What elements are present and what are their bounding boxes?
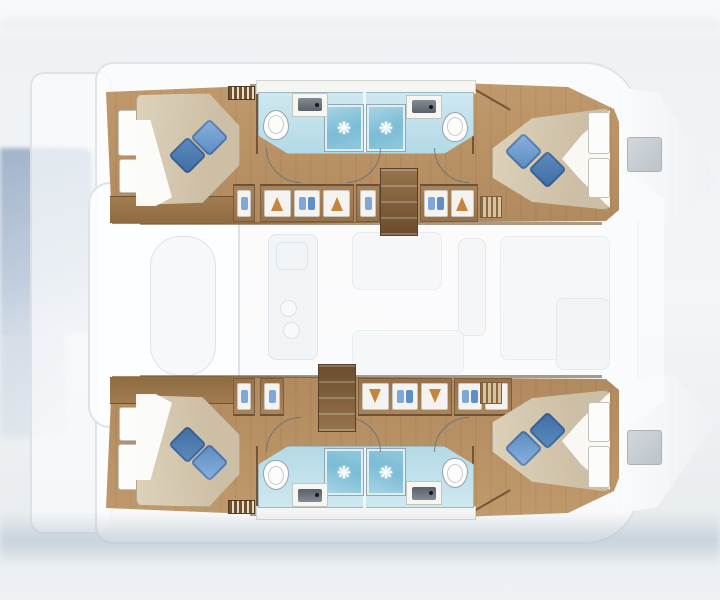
wardrobe-door — [264, 383, 280, 410]
wardrobe-door — [237, 383, 251, 410]
shirt-icon — [241, 390, 248, 403]
ghost-saloon-seat — [352, 232, 442, 290]
wardrobe-door — [323, 190, 350, 217]
companionway-stairs — [380, 168, 418, 236]
shirt-icon — [462, 390, 469, 403]
bathroom-counter-wall — [256, 80, 476, 94]
vent-grille — [480, 196, 502, 218]
wardrobe-door — [451, 190, 475, 217]
shower-stall: ❋ — [367, 449, 405, 495]
floorplan-canvas: ❋ ❋ — [0, 0, 720, 600]
wardrobe-door — [237, 190, 251, 217]
hull: ❋ ❋ — [100, 372, 622, 520]
shirt-icon — [308, 197, 315, 210]
background-streak — [0, 20, 720, 29]
ghost-galley-sink — [276, 242, 308, 270]
wardrobe — [233, 184, 255, 222]
sink — [406, 481, 442, 505]
bow-hatch-upper — [627, 137, 662, 172]
wardrobe-door — [424, 190, 448, 217]
hanger-icon — [271, 197, 283, 211]
hanger-icon — [429, 390, 441, 404]
showerhead-icon: ❋ — [337, 464, 351, 481]
wardrobe — [260, 184, 354, 222]
sink — [292, 483, 328, 507]
wardrobe-door — [421, 383, 448, 410]
wardrobe — [358, 378, 452, 416]
wardrobe — [233, 378, 255, 416]
headboard-panel — [588, 402, 610, 442]
headboard-panel — [588, 158, 610, 198]
vent-grille — [480, 382, 502, 404]
shower-stall: ❋ — [325, 105, 363, 151]
companionway-stairs — [318, 364, 356, 432]
wardrobe-door — [362, 383, 389, 410]
wardrobe-door — [458, 383, 482, 410]
wardrobe-door — [360, 190, 376, 217]
wardrobe — [356, 184, 380, 222]
shirt-icon — [406, 390, 413, 403]
bathroom-divider-wall — [363, 448, 366, 508]
hanger-icon — [369, 390, 381, 404]
vent-grille — [228, 86, 255, 100]
shirt-icon — [269, 390, 276, 403]
bathroom-divider-wall — [363, 92, 366, 152]
background-streak — [0, 40, 720, 49]
wardrobe-door — [294, 190, 321, 217]
shirt-icon — [365, 197, 372, 210]
wardrobe-door — [264, 190, 291, 217]
toilet — [263, 110, 289, 140]
showerhead-icon: ❋ — [379, 464, 393, 481]
showerhead-icon: ❋ — [379, 120, 393, 137]
shirt-icon — [397, 390, 404, 403]
ghost-dinette-seat — [556, 298, 610, 370]
headboard-panel — [588, 112, 610, 154]
shirt-icon — [428, 197, 435, 210]
ghost-stove-burner — [283, 322, 300, 339]
wardrobe — [260, 378, 284, 416]
headboard-panel — [588, 446, 610, 488]
ghost-saloon-table — [458, 238, 486, 336]
shirt-icon — [471, 390, 478, 403]
toilet — [442, 112, 468, 142]
hanger-icon — [456, 197, 468, 211]
shirt-icon — [299, 197, 306, 210]
showerhead-icon: ❋ — [337, 120, 351, 137]
hanger-icon — [331, 197, 343, 211]
hull: ❋ ❋ — [100, 80, 622, 228]
bow-hatch-lower — [627, 430, 662, 465]
sink — [292, 93, 328, 117]
ghost-saloon-seat — [352, 330, 464, 374]
ghost-helm-seat — [150, 236, 216, 376]
wardrobe-door — [392, 383, 419, 410]
shower-stall: ❋ — [325, 449, 363, 495]
cabin-wall — [256, 84, 258, 154]
sink — [406, 95, 442, 119]
ghost-stove-burner — [280, 300, 297, 317]
wardrobe — [420, 184, 478, 222]
shirt-icon — [241, 197, 248, 210]
shower-stall: ❋ — [367, 105, 405, 151]
shirt-icon — [437, 197, 444, 210]
hull-shadow — [0, 512, 720, 564]
